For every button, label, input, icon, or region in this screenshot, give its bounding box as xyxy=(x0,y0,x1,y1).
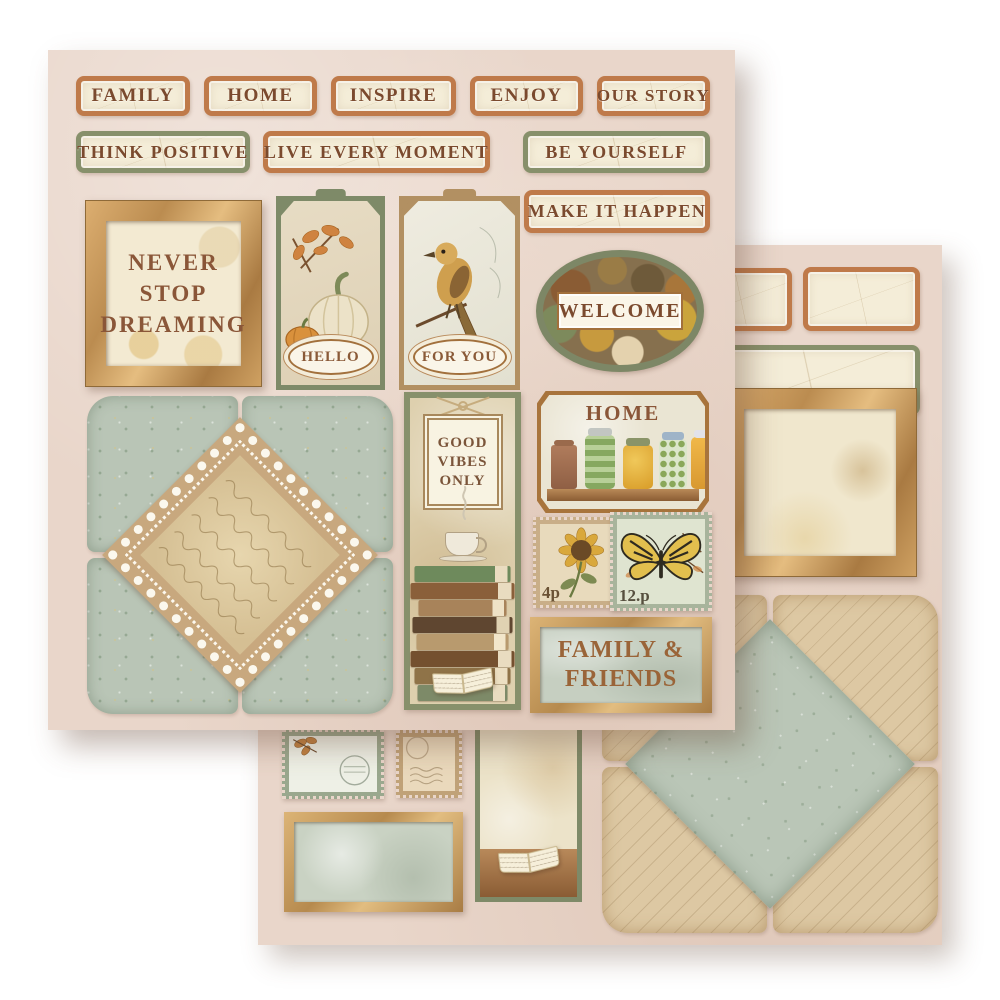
word-label-think-positive: THINK POSITIVE xyxy=(76,131,250,173)
olive-jar-illustration xyxy=(659,439,687,489)
tag-label-text: HELLO xyxy=(301,349,359,366)
tag-scene: HELLO xyxy=(281,201,380,385)
frame-line: FRIENDS xyxy=(565,666,677,693)
book-spine xyxy=(413,617,513,633)
book-page xyxy=(497,853,530,873)
word-label-family: FAMILY xyxy=(76,76,190,116)
quote-line: NEVER xyxy=(128,250,219,276)
home-shelf-plaque: HOME xyxy=(537,391,709,513)
book-page xyxy=(431,673,463,693)
quote-line: VIBES xyxy=(437,454,487,471)
word-label-text: FAMILY xyxy=(92,85,175,107)
envelope-sage xyxy=(85,394,395,716)
shelf-board xyxy=(547,489,699,501)
word-label-home: HOME xyxy=(204,76,317,116)
word-label-live-every-moment: LIVE EVERY MOMENT xyxy=(263,131,490,173)
tag-label-text: FOR YOU xyxy=(422,349,497,366)
hello-oval: HELLO xyxy=(288,339,374,375)
welcome-plaque: WELCOME xyxy=(536,250,704,372)
tag-hello: HELLO xyxy=(276,196,385,390)
word-label-enjoy: ENJOY xyxy=(470,76,583,116)
empty-frame-mat xyxy=(744,409,896,556)
book-spine xyxy=(411,651,515,667)
blank-stamp-green xyxy=(282,729,384,799)
word-label-text: INSPIRE xyxy=(350,85,438,107)
home-shelf-interior: HOME xyxy=(541,395,705,509)
cup xyxy=(445,532,479,556)
crock-jar-illustration xyxy=(551,445,577,489)
word-label-our-story: OUR STORY xyxy=(597,76,710,116)
wood-frame-never-stop-dreaming: NEVER STOP DREAMING xyxy=(85,200,262,387)
scrapbook-sheet-front: FAMILY HOME INSPIRE ENJOY OUR STORY THIN… xyxy=(48,50,735,730)
book-spine xyxy=(415,566,511,582)
frame-family-friends: FAMILY & FRIENDS xyxy=(530,617,712,713)
honey-jar-illustration xyxy=(623,445,653,489)
framed-quote: NEVER STOP DREAMING xyxy=(106,221,241,366)
word-label-text: MAKE IT HAPPEN xyxy=(528,201,707,222)
word-label-text: BE YOURSELF xyxy=(545,142,687,163)
tag-for-you: FOR YOU xyxy=(399,196,520,390)
word-label-text: OUR STORY xyxy=(597,86,710,106)
quote-line: STOP xyxy=(140,281,208,307)
empty-gold-frame-mat xyxy=(294,822,453,902)
coffee-cup-illustration xyxy=(433,520,493,564)
stamp-denomination: 12.p xyxy=(619,586,650,606)
stamp-denomination: 4p xyxy=(542,583,560,603)
blank-label-orange-2 xyxy=(803,267,920,331)
quote-line: DREAMING xyxy=(100,312,246,338)
welcome-text: WELCOME xyxy=(559,300,682,323)
empty-gold-frame xyxy=(284,812,463,912)
word-label-text: ENJOY xyxy=(491,85,563,107)
tag-scene: FOR YOU xyxy=(404,201,515,385)
stamp-sunflower: 4p xyxy=(533,517,622,608)
word-label-be-yourself: BE YOURSELF xyxy=(523,131,710,173)
stamp-butterfly: 12.p xyxy=(610,512,712,611)
tag-good-vibes: GOOD VIBES ONLY xyxy=(404,392,521,710)
word-label-text: LIVE EVERY MOMENT xyxy=(264,142,489,163)
book-spine xyxy=(411,583,515,599)
postmark-waves-illustration xyxy=(403,737,455,791)
empty-wood-frame xyxy=(723,388,917,577)
home-shelf-text: HOME xyxy=(541,401,705,426)
blank-stamp-green-inner xyxy=(289,736,377,792)
for-you-oval: FOR YOU xyxy=(413,339,507,375)
book-spine xyxy=(417,634,509,650)
book-spine xyxy=(419,600,507,616)
tag-open-book xyxy=(475,720,582,902)
quote-line: GOOD xyxy=(438,435,488,452)
word-label-text: THINK POSITIVE xyxy=(77,142,249,163)
product-photo: FAMILY HOME INSPIRE ENJOY OUR STORY THIN… xyxy=(0,0,1000,1000)
word-label-make-it-happen: MAKE IT HAPPEN xyxy=(524,190,710,233)
peach-jar-illustration xyxy=(691,437,717,489)
family-friends-panel: FAMILY & FRIENDS xyxy=(540,627,702,703)
leaves-postmark-illustration xyxy=(289,736,377,792)
welcome-panel: WELCOME xyxy=(557,292,683,330)
word-label-inspire: INSPIRE xyxy=(331,76,456,116)
pickle-jar-illustration xyxy=(585,435,615,489)
steam-icon xyxy=(457,486,471,520)
blank-stamp-tan-inner xyxy=(403,737,455,791)
blank-stamp-tan xyxy=(396,730,462,798)
saucer xyxy=(439,555,487,562)
word-label-text: HOME xyxy=(227,85,293,107)
frame-line: FAMILY & xyxy=(558,637,684,664)
